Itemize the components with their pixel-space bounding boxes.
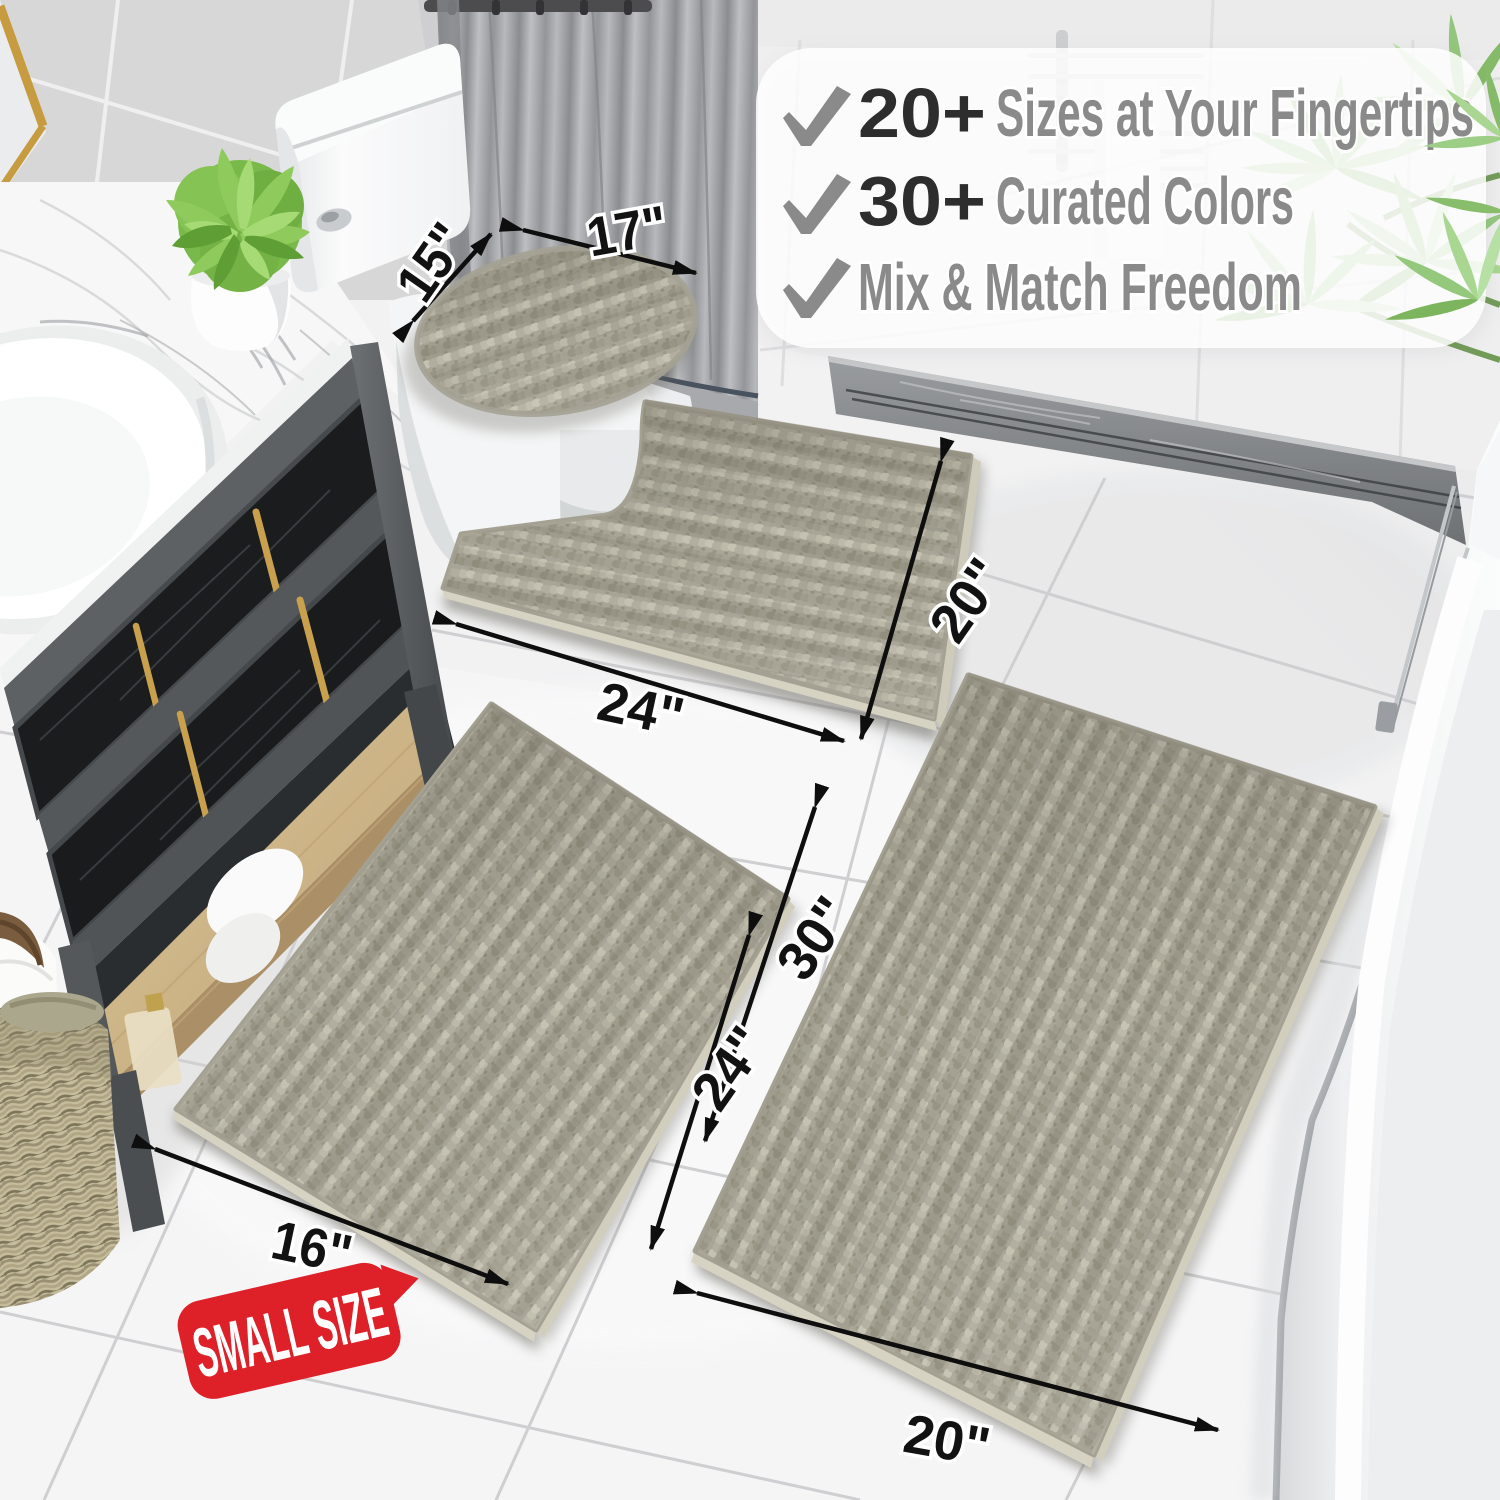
svg-text:20+: 20+: [858, 74, 986, 152]
svg-text:Curated Colors: Curated Colors: [996, 164, 1294, 239]
svg-text:Sizes at Your Fingertips: Sizes at Your Fingertips: [996, 76, 1474, 151]
svg-text:30+: 30+: [858, 162, 986, 240]
svg-text:Mix & Match Freedom: Mix & Match Freedom: [858, 250, 1302, 325]
